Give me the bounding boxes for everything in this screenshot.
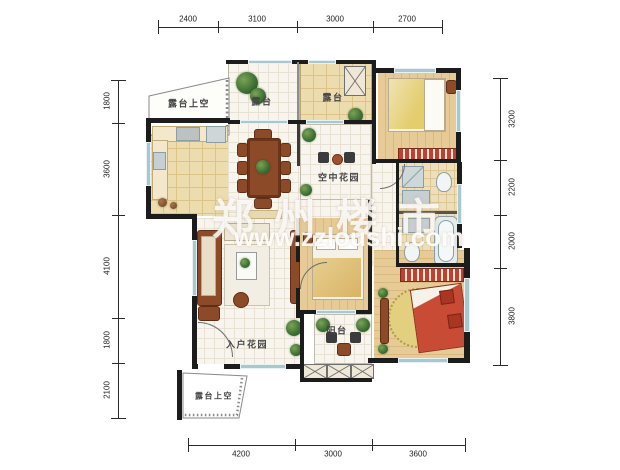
dim-tick — [158, 20, 159, 34]
kitchen-pot-plant — [158, 198, 167, 207]
master-plant-1 — [378, 288, 388, 298]
kitchen-pot-plant-2 — [170, 202, 177, 209]
window-bedroom-topright-right — [456, 90, 461, 132]
dim-bottom-1: 4200 — [232, 450, 250, 459]
dim-tick — [188, 438, 189, 452]
balcony-plant-right — [356, 318, 370, 332]
dim-tick — [112, 215, 125, 216]
window-sky-garden-top — [306, 120, 344, 124]
window-master-right — [464, 278, 470, 332]
dim-line-left — [118, 80, 119, 418]
terrace-above-bottom-label: 露台上空 — [195, 391, 233, 402]
window-terrace-top — [248, 60, 292, 64]
ottoman — [233, 292, 249, 308]
bed-master-pillow-2 — [447, 313, 463, 329]
balcony-table — [337, 343, 351, 356]
wall-kitchen-top — [146, 118, 230, 123]
master-plant-2 — [378, 344, 388, 354]
window-living-left — [192, 240, 197, 296]
dim-bottom-3: 3600 — [409, 450, 427, 459]
window-master-bottom — [398, 358, 448, 363]
dim-tick — [442, 20, 443, 34]
dining-chair-right-2 — [280, 161, 291, 175]
dim-tick — [494, 215, 507, 216]
dim-top-3: 3000 — [326, 15, 344, 24]
wall-terrace-divider — [297, 62, 299, 122]
floorplan-canvas: 露台上空 露台 露台 空中花园 入户花园 阳台 露台上空 郑州楼市 www.zz… — [0, 0, 620, 470]
master-bench — [380, 298, 389, 344]
dim-right-3: 2000 — [508, 232, 517, 250]
dim-left-4: 1800 — [103, 331, 112, 349]
entry-door-gap — [198, 364, 224, 369]
dim-left-5: 2100 — [103, 381, 112, 399]
coffee-table-plant — [240, 258, 250, 268]
window-terrace-top-2 — [308, 60, 336, 64]
dim-bottom-2: 3000 — [324, 450, 342, 459]
dim-line-top — [158, 27, 442, 28]
dim-line-right — [500, 78, 501, 365]
dim-tick — [112, 318, 125, 319]
dim-right-4: 3800 — [508, 307, 517, 325]
balcony-label: 阳台 — [326, 324, 347, 337]
dim-left-2: 3600 — [103, 160, 112, 178]
planter-box-1 — [303, 364, 327, 379]
dim-top-2: 3100 — [248, 15, 266, 24]
sky-garden-label: 空中花园 — [318, 171, 360, 184]
sky-garden-table — [332, 154, 343, 165]
kitchen-sink-icon — [153, 152, 166, 170]
dining-centerpiece-plant — [256, 160, 270, 174]
dim-line-bottom — [188, 445, 465, 446]
watermark-url: www.zzloushi.com — [234, 222, 464, 253]
dim-tick — [218, 21, 219, 33]
wall-bedroom-topright-left — [372, 60, 376, 164]
stove-icon — [176, 127, 200, 141]
terrace-bottom-left-wall — [177, 370, 182, 420]
window-dining-top — [240, 120, 288, 124]
dim-tick — [297, 21, 298, 33]
dim-top-4: 2700 — [398, 15, 416, 24]
wall-balcony-bottom — [300, 378, 372, 382]
planter-box-3 — [351, 364, 374, 379]
dim-tick — [295, 439, 296, 451]
entry-garden-label: 入户花园 — [226, 338, 268, 351]
wall-master-top — [396, 263, 466, 267]
sky-garden-chair-2 — [344, 152, 355, 163]
dim-tick — [494, 160, 507, 161]
wall-bath-top — [374, 159, 460, 163]
dim-tick — [111, 418, 126, 419]
dim-tick — [493, 78, 508, 79]
armchair — [198, 306, 220, 321]
dim-right-1: 3200 — [508, 110, 517, 128]
sky-garden-plant-1 — [302, 128, 316, 142]
dim-left-1: 1800 — [103, 92, 112, 110]
terrace-skylight — [344, 66, 366, 96]
window-kitchen-left — [146, 142, 151, 186]
dim-left-3: 4100 — [103, 257, 112, 275]
dim-tick — [111, 80, 126, 81]
terrace-left-label: 露台 — [251, 95, 272, 108]
bed-topright-duvet — [424, 79, 445, 131]
dim-tick — [494, 268, 507, 269]
dim-tick — [112, 123, 125, 124]
bed-master-pillow-1 — [439, 289, 455, 305]
dim-tick — [493, 365, 508, 366]
dim-tick — [373, 21, 374, 33]
bed-topright-blanket — [389, 79, 427, 129]
planter-box-2 — [327, 364, 351, 379]
terrace-above-top-label: 露台上空 — [168, 97, 210, 110]
window-entry-bottom — [240, 364, 286, 369]
wall-dining-sky-divider — [297, 124, 300, 166]
fridge-icon — [206, 126, 226, 143]
shower-icon — [402, 166, 424, 188]
window-bedroom-topright — [394, 68, 436, 73]
dim-tick — [465, 438, 466, 452]
dim-right-2: 2200 — [508, 178, 517, 196]
dim-tick — [112, 363, 125, 364]
sky-garden-chair-1 — [318, 152, 329, 163]
window-balcony-top — [316, 310, 356, 314]
kitchen-counter-side — [152, 140, 168, 200]
balcony-chair-2 — [350, 332, 361, 343]
terrace-right-label: 露台 — [322, 91, 343, 104]
wardrobe-master — [400, 268, 464, 282]
dim-tick — [372, 439, 373, 451]
dim-top-1: 2400 — [179, 15, 197, 24]
dining-chair-right-1 — [280, 143, 291, 157]
wall-step-kitchen-living — [146, 214, 196, 219]
